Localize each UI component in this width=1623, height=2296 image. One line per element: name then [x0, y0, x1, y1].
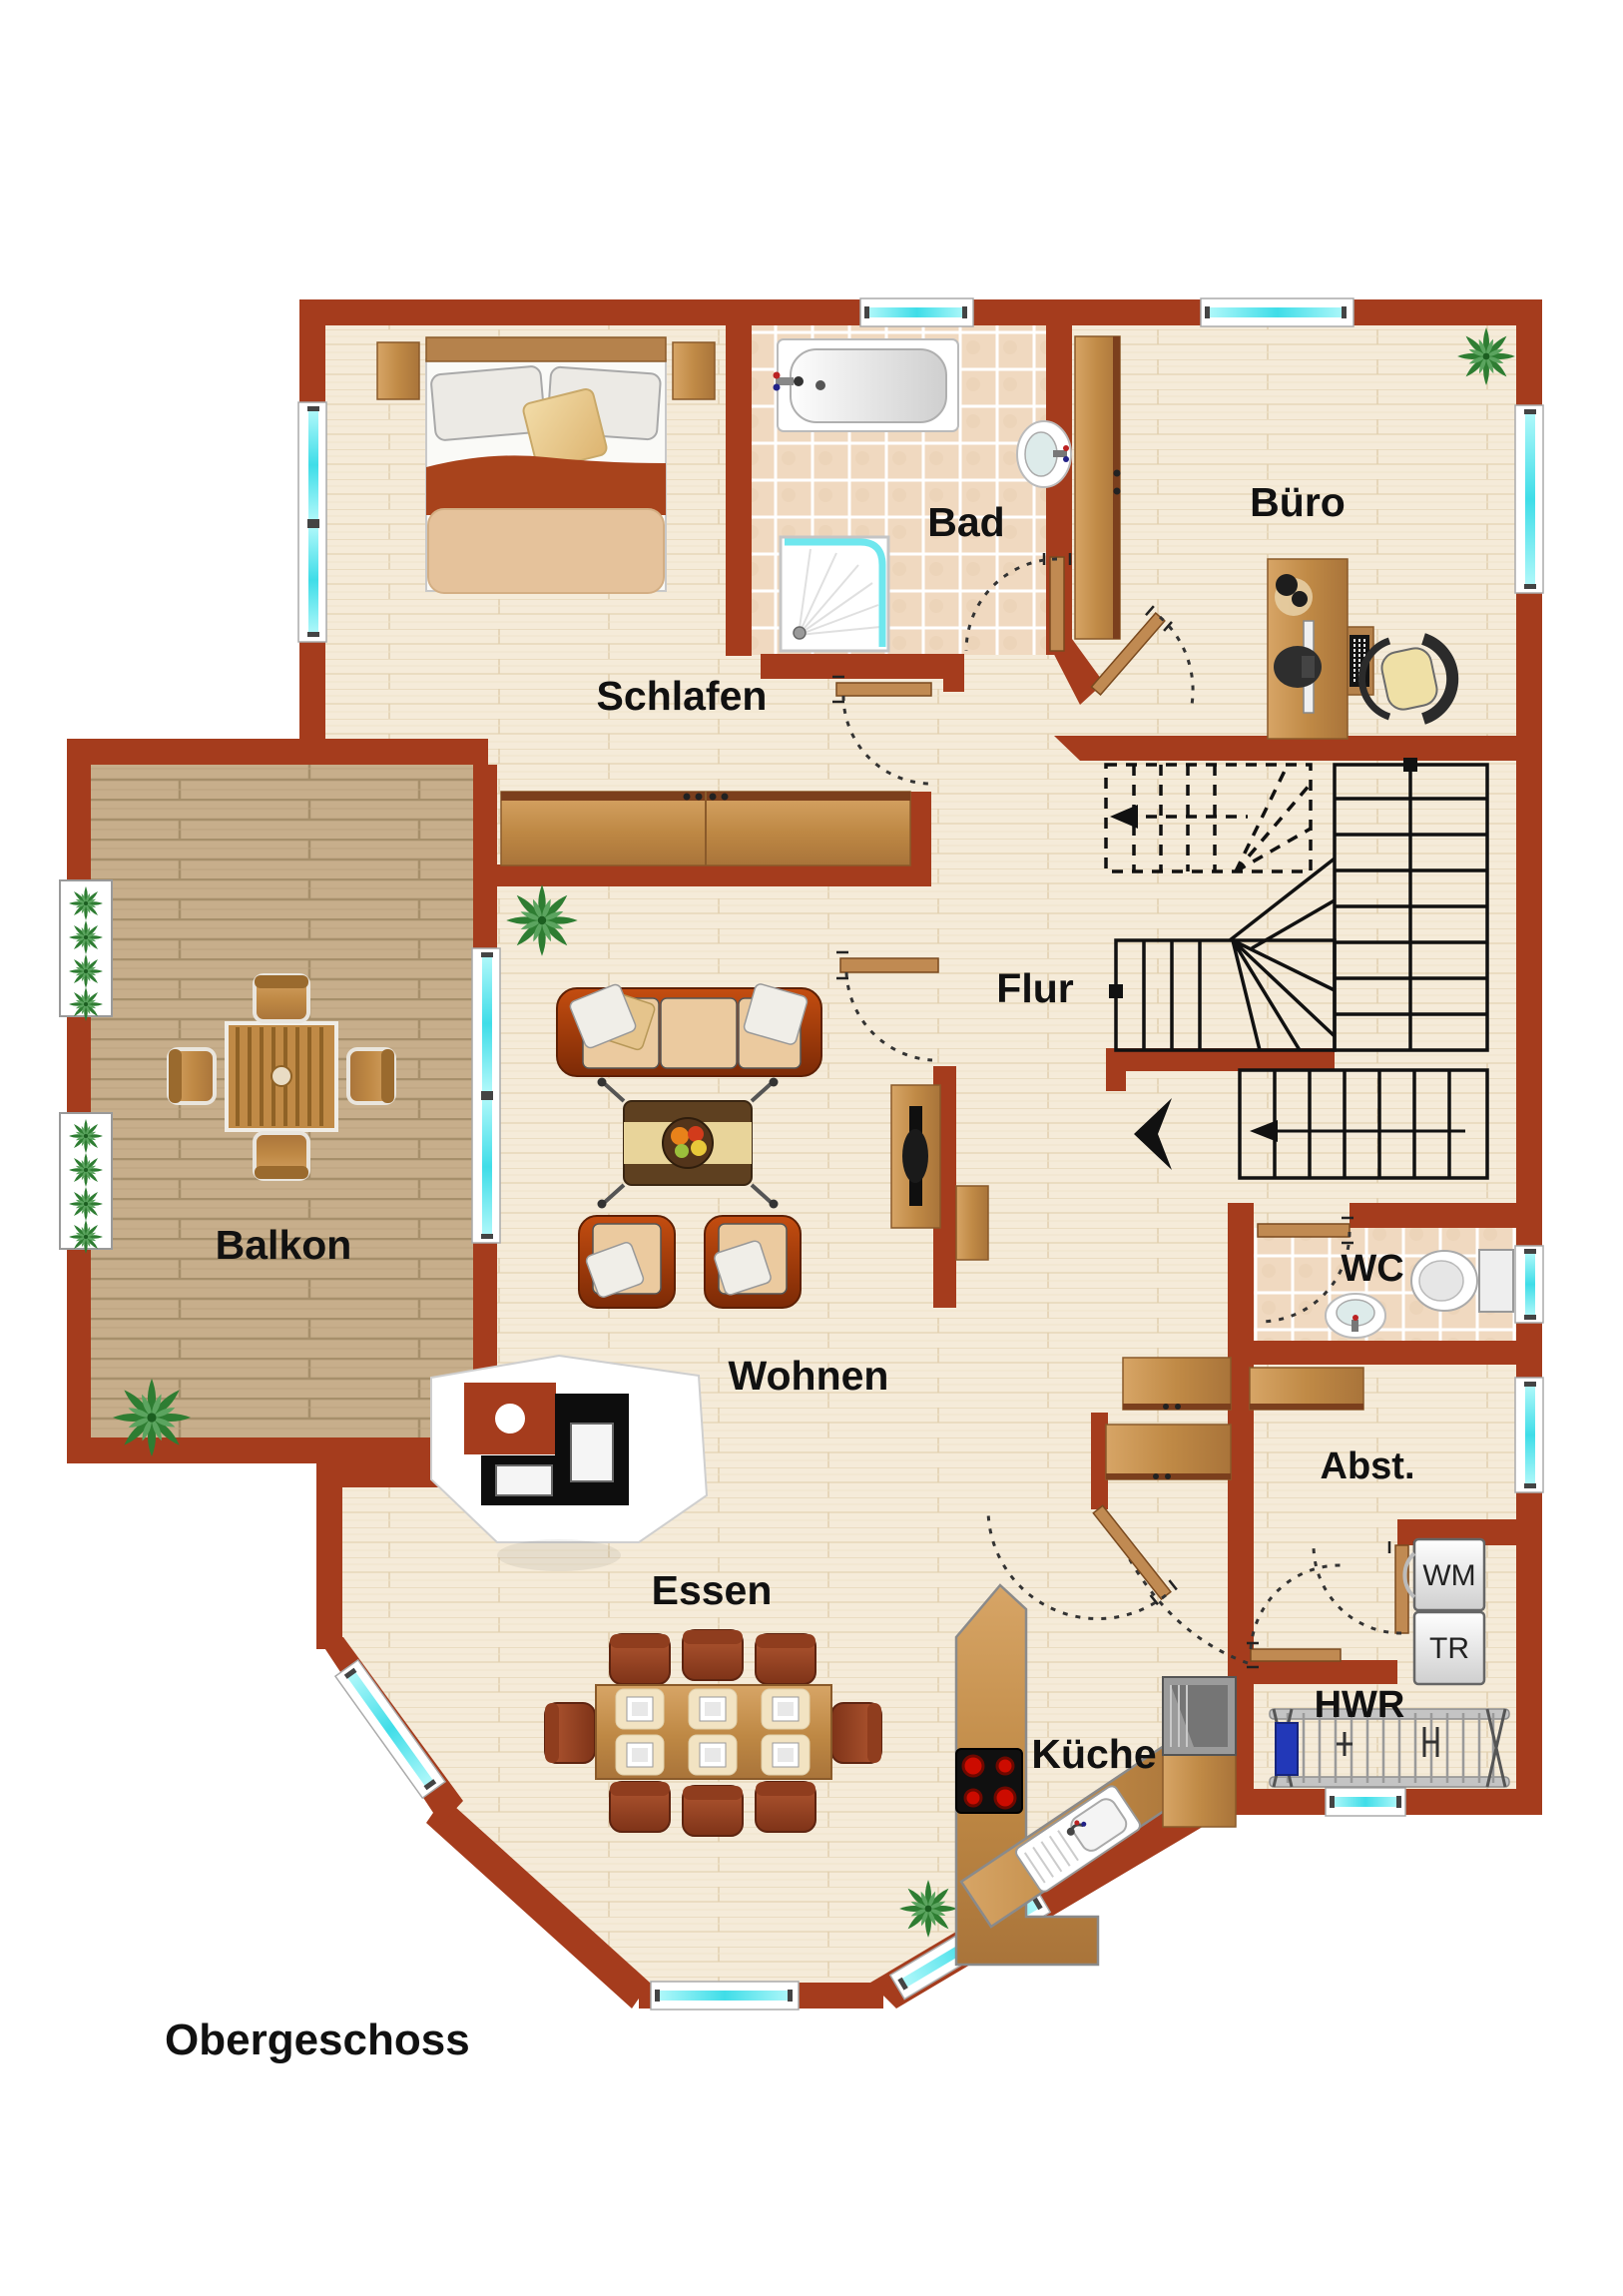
room-label-wc: WC [1341, 1248, 1403, 1290]
balcony-chair-south [255, 1133, 308, 1179]
cooktop [956, 1749, 1022, 1813]
kitchen-tall-cabinet [1163, 1677, 1236, 1827]
window-hwr-bottom [1326, 1788, 1405, 1816]
wall-bad-south-corner [943, 654, 964, 692]
balcony-chair-west [169, 1049, 215, 1103]
floorplan-svg: Schlafen Bad Büro Flur Balkon Wohnen WC … [0, 0, 1623, 2296]
bathtub [774, 339, 959, 431]
floorplan-page: Schlafen Bad Büro Flur Balkon Wohnen WC … [0, 0, 1623, 2296]
armchair-right [705, 1216, 801, 1308]
nightstand-right [673, 342, 715, 399]
tv-sideboard [891, 1085, 940, 1228]
hall-sideboard-a [1123, 1358, 1231, 1410]
window-buero-top [1201, 298, 1353, 326]
office-cabinet [1075, 336, 1121, 639]
double-bed [426, 337, 666, 593]
window-schlafen-west [298, 402, 326, 642]
stairs-marker-top [1403, 758, 1417, 772]
plant-wohnen [506, 884, 577, 955]
wall-bad-south [761, 654, 943, 679]
abst-sideboard [1250, 1368, 1363, 1410]
armchair-left [579, 1216, 675, 1308]
appliance-label-tr: TR [1429, 1632, 1469, 1665]
wardrobe [501, 792, 910, 865]
wall-below-winder-stub [1106, 1048, 1126, 1091]
room-label-wohnen: Wohnen [729, 1353, 889, 1399]
sofa [557, 983, 821, 1076]
window-abst-east [1515, 1378, 1543, 1492]
planter-box-lower [60, 1113, 112, 1254]
window-wc-east [1515, 1246, 1543, 1323]
wall-abst-south [1254, 1660, 1397, 1684]
wall-wc-north [1350, 1203, 1516, 1228]
floor-title: Obergeschoss [165, 2015, 470, 2064]
room-label-essen: Essen [652, 1567, 773, 1613]
appliance-label-wm: WM [1422, 1559, 1475, 1592]
toilet [1411, 1250, 1513, 1312]
wall-schlafen-south [497, 864, 910, 886]
wc-sink [1326, 1294, 1385, 1338]
window-bay-bottom [651, 1982, 799, 2009]
room-label-schlafen: Schlafen [597, 673, 768, 719]
planter-box-upper [60, 880, 112, 1021]
bad-sink [1017, 421, 1071, 487]
room-label-abst: Abst. [1321, 1445, 1415, 1487]
room-label-bad: Bad [927, 499, 1004, 545]
plant-buero [1457, 327, 1515, 385]
wall-pillar-schlafen [908, 792, 931, 886]
abst-sideboard-edge [1250, 1404, 1363, 1410]
plant-balcony [113, 1379, 191, 1456]
shower [781, 537, 888, 651]
window-bad-top [860, 298, 973, 326]
window-buero-east [1515, 405, 1543, 593]
wall-balcony-left [67, 739, 91, 1463]
room-label-flur: Flur [996, 965, 1073, 1011]
window-balcony-glass-front [472, 948, 500, 1243]
room-label-kueche: Küche [1031, 1731, 1156, 1777]
balcony-table [227, 1023, 336, 1130]
balcony-chair-east [348, 1049, 394, 1103]
room-label-buero: Büro [1250, 479, 1346, 525]
wall-west-lower [316, 1465, 342, 1649]
nightstand-left [377, 342, 419, 399]
wall-balcony-top [67, 739, 488, 765]
wall-wc-south [1254, 1341, 1516, 1365]
hall-sideboard-b [1106, 1425, 1231, 1479]
room-label-hwr: HWR [1315, 1684, 1405, 1726]
balcony-chair-north [255, 975, 308, 1021]
desk [1268, 559, 1348, 739]
stairs-marker-left [1109, 984, 1123, 998]
plant-essen [899, 1880, 957, 1938]
room-label-balkon: Balkon [216, 1222, 352, 1268]
hall-sideboard [956, 1186, 988, 1260]
wall-schlafen-bad [726, 325, 752, 656]
